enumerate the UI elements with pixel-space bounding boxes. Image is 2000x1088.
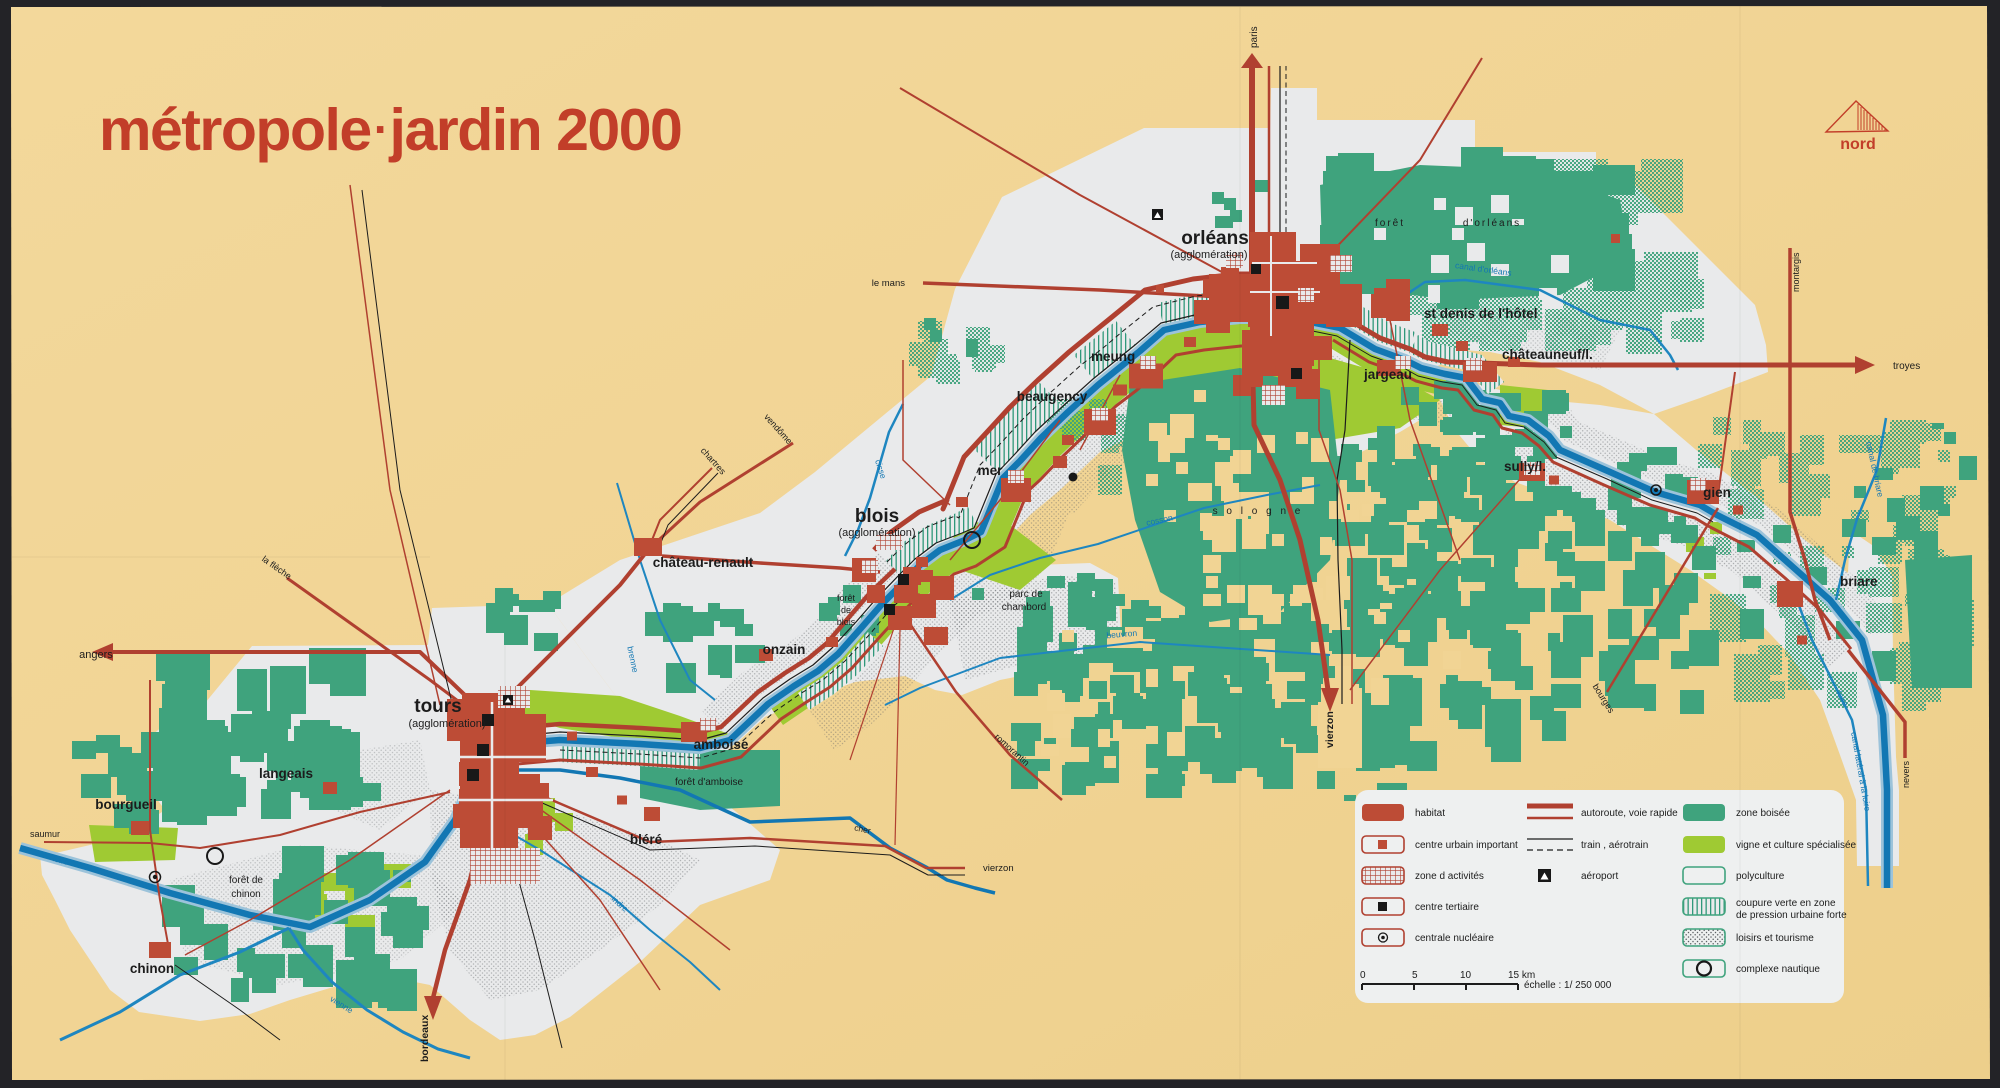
svg-text:le mans: le mans — [872, 278, 906, 289]
svg-text:orléans: orléans — [1181, 228, 1249, 249]
svg-text:coupure verte en zone: coupure verte en zone — [1736, 898, 1836, 909]
svg-text:nevers: nevers — [1901, 760, 1911, 788]
svg-text:sully/l.: sully/l. — [1504, 459, 1546, 474]
svg-text:train , aérotrain: train , aérotrain — [1581, 840, 1648, 851]
svg-text:blois: blois — [855, 506, 899, 527]
svg-text:polyculture: polyculture — [1736, 871, 1785, 882]
svg-text:parc de: parc de — [1009, 589, 1043, 600]
svg-text:saumur: saumur — [30, 829, 60, 839]
svg-text:amboise: amboise — [694, 737, 749, 752]
svg-text:jargeau: jargeau — [1363, 367, 1412, 382]
svg-text:zone d activités: zone d activités — [1415, 871, 1484, 882]
svg-text:10: 10 — [1460, 970, 1472, 981]
svg-text:mer: mer — [978, 463, 1004, 478]
svg-text:centrale nucléaire: centrale nucléaire — [1415, 933, 1494, 944]
svg-text:briare: briare — [1840, 574, 1878, 589]
svg-text:complexe nautique: complexe nautique — [1736, 964, 1820, 975]
svg-text:de pression urbaine forte: de pression urbaine forte — [1736, 910, 1847, 921]
svg-text:autoroute, voie rapide: autoroute, voie rapide — [1581, 808, 1678, 819]
svg-text:blois: blois — [837, 617, 856, 627]
svg-text:forêt: forêt — [1375, 218, 1405, 229]
svg-text:forêt d'amboise: forêt d'amboise — [675, 777, 743, 788]
svg-text:s o l o g n e: s o l o g n e — [1213, 506, 1304, 517]
svg-text:vierzon: vierzon — [983, 863, 1014, 874]
svg-text:centre urbain important: centre urbain important — [1415, 840, 1518, 851]
svg-text:châteauneuf/l.: châteauneuf/l. — [1502, 347, 1593, 362]
svg-text:chinon: chinon — [130, 961, 174, 976]
svg-text:zone boisée: zone boisée — [1736, 808, 1790, 819]
svg-text:(agglomération): (agglomération) — [408, 718, 485, 730]
svg-text:échelle : 1/ 250 000: échelle : 1/ 250 000 — [1524, 980, 1612, 991]
svg-text:forêt: forêt — [837, 593, 856, 603]
svg-text:bordeaux: bordeaux — [419, 1015, 431, 1062]
svg-text:angers: angers — [79, 649, 113, 661]
svg-text:forêt de: forêt de — [229, 875, 263, 886]
svg-text:beaugency: beaugency — [1017, 389, 1088, 404]
svg-text:0: 0 — [1360, 970, 1366, 981]
svg-text:centre tertiaire: centre tertiaire — [1415, 902, 1479, 913]
svg-text:chinon: chinon — [231, 889, 260, 900]
svg-text:aéroport: aéroport — [1581, 871, 1618, 882]
svg-text:vierzon: vierzon — [1324, 711, 1336, 748]
svg-text:langeais: langeais — [259, 766, 313, 781]
svg-text:bléré: bléré — [630, 832, 663, 847]
svg-text:(agglomération): (agglomération) — [1170, 249, 1247, 261]
svg-text:vigne et culture spécialisée: vigne et culture spécialisée — [1736, 840, 1857, 851]
svg-text:de: de — [841, 605, 851, 615]
svg-text:meung: meung — [1091, 349, 1135, 364]
svg-text:bourgueil: bourgueil — [95, 797, 157, 812]
svg-text:5: 5 — [1412, 970, 1418, 981]
svg-text:d'orléans: d'orléans — [1463, 218, 1521, 229]
svg-text:tours: tours — [414, 696, 462, 717]
svg-text:chambord: chambord — [1002, 602, 1046, 613]
svg-text:nord: nord — [1840, 136, 1876, 153]
svg-text:onzain: onzain — [763, 642, 806, 657]
svg-text:loisirs et tourisme: loisirs et tourisme — [1736, 933, 1814, 944]
svg-text:(agglomération): (agglomération) — [838, 527, 915, 539]
svg-text:métropole·jardin 2000: métropole·jardin 2000 — [99, 97, 681, 163]
svg-text:habitat: habitat — [1415, 808, 1445, 819]
svg-text:paris: paris — [1249, 26, 1260, 48]
svg-text:montargis: montargis — [1791, 252, 1801, 292]
svg-text:château-renault: château-renault — [653, 555, 754, 570]
svg-text:troyes: troyes — [1893, 361, 1920, 372]
svg-text:st denis de l'hôtel: st denis de l'hôtel — [1424, 306, 1537, 321]
svg-text:gien: gien — [1703, 485, 1731, 500]
